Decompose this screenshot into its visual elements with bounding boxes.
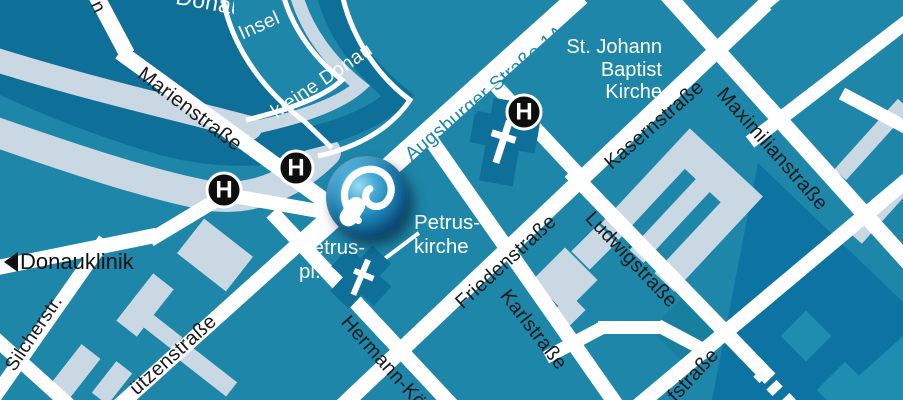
h-stop-icon[interactable]: H [506,94,543,131]
road [598,321,662,334]
arrow-left-icon [4,252,18,272]
place-label-petrusplatz: Petrus- pl. [299,236,365,284]
ear-hearing-logo-icon[interactable] [326,156,408,238]
poi-donauklinik: Donauklinik [4,249,134,275]
water-label-donau-clip: Donau [176,0,234,15]
h-stop-icon[interactable]: H [206,172,243,209]
city-map: Marienstraße Kasernstraße Maximilianstra… [0,0,903,400]
place-label-st-johann: St. Johann Baptist Kirche [546,36,662,104]
h-stop-icon[interactable]: H [278,150,315,187]
place-label-petruskirche: Petrus- kirche [414,211,480,259]
poi-label-donauklinik: Donauklinik [20,249,134,275]
